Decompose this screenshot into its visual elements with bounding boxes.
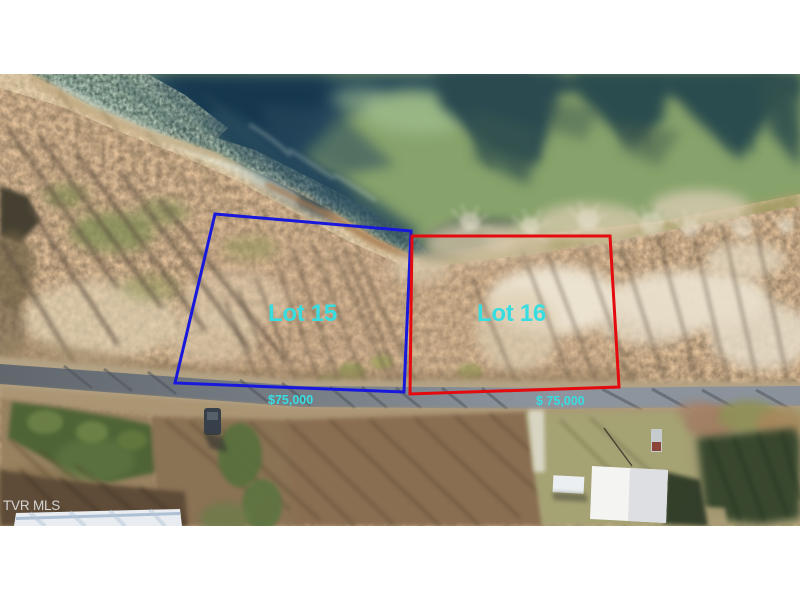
- svg-text:Lot 15: Lot 15: [268, 300, 337, 327]
- svg-text:$75,000: $75,000: [268, 393, 313, 407]
- svg-text:$ 75,000: $ 75,000: [536, 394, 585, 408]
- svg-text:Lot 16: Lot 16: [477, 300, 546, 327]
- svg-text:TVR MLS: TVR MLS: [3, 498, 60, 513]
